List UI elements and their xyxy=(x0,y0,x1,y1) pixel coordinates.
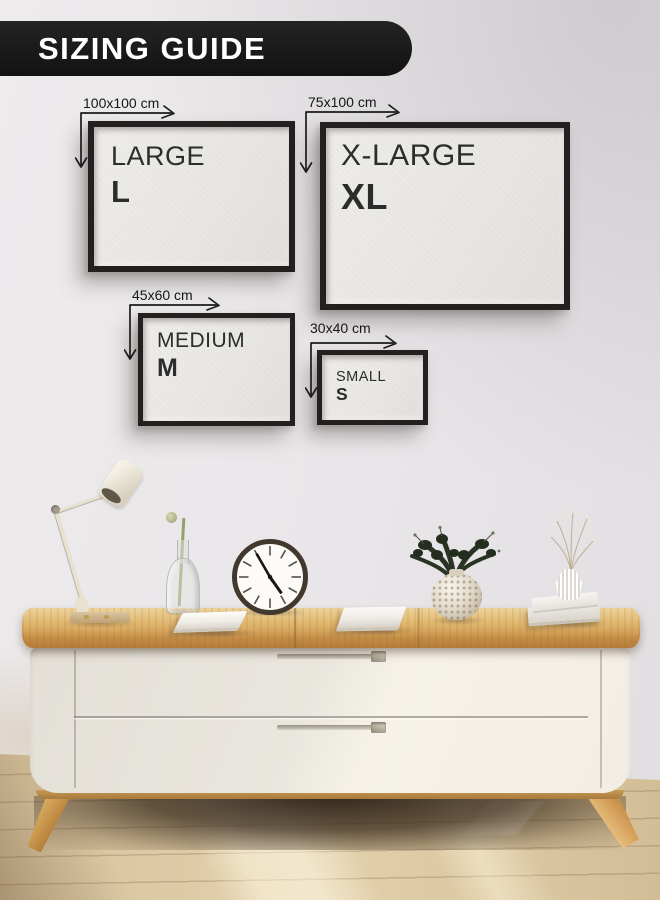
dimension-arrow-icon xyxy=(305,332,405,404)
notebook xyxy=(172,611,247,633)
size-abbr-xlarge: XL xyxy=(341,179,388,215)
drawer-handle-upper xyxy=(277,654,385,659)
cabinet-seam xyxy=(74,650,76,788)
drawer-divider xyxy=(74,716,588,718)
sideboard-body xyxy=(30,646,630,793)
desk-lamp-joint xyxy=(51,505,60,514)
sizing-guide-image: SIZING GUIDE 100x100 cm LARGE L 75x100 c… xyxy=(0,0,660,900)
desk-lamp-arm xyxy=(55,512,85,605)
banner-title: SIZING GUIDE xyxy=(38,31,266,67)
dried-flowers xyxy=(543,503,599,575)
dimension-arrow-icon xyxy=(300,101,410,179)
sizing-guide-banner: SIZING GUIDE xyxy=(0,21,412,76)
dimension-arrow-icon xyxy=(75,102,185,174)
desk-lamp-base xyxy=(70,612,130,623)
drawer-handle-lower xyxy=(277,725,385,730)
bud-vase xyxy=(166,558,200,614)
desk-lamp-head xyxy=(96,456,145,509)
hobnail-vase xyxy=(431,573,482,620)
dimension-arrow-icon xyxy=(124,294,234,366)
flower-bud xyxy=(166,512,177,523)
size-abbr-large: L xyxy=(111,176,130,207)
cabinet-shadow xyxy=(34,796,626,850)
cabinet-seam xyxy=(600,650,602,788)
wall-clock xyxy=(231,538,309,616)
notebook xyxy=(336,606,407,631)
